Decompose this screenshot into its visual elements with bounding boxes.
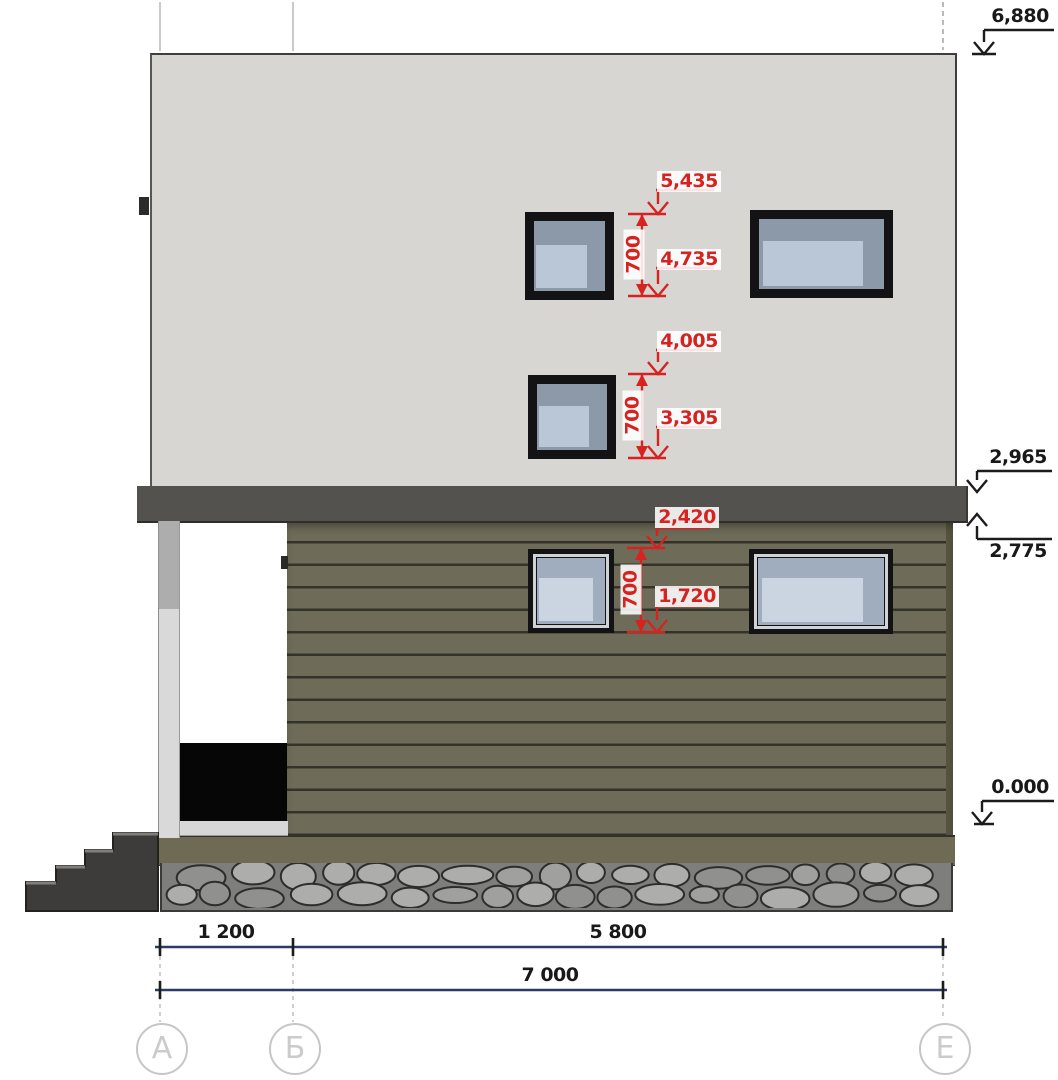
level-label-slab-bottom: 2,775 [984,541,1052,562]
base-band [158,835,955,866]
elevation-drawing: 5,435 700 4,735 4,005 700 3,305 2,420 70… [0,0,1058,1080]
window-ground-left [528,549,614,633]
door-opening [176,743,287,821]
dim-label: 1,720 [655,586,719,607]
window-upper-right [750,210,893,298]
dim-label: 4,735 [657,249,721,270]
foundation-stones [162,863,951,908]
stone-foundation [160,863,953,912]
dim-label-b-e: 5 800 [578,922,658,943]
dim-label-a-b: 1 200 [186,922,266,943]
level-label-roof: 6,880 [986,6,1054,27]
dim-label-total: 7 000 [510,965,590,986]
axis-bubble-b: Б [269,1023,321,1075]
dim-label: 2,420 [655,507,719,528]
dim-label-vertical: 700 [621,565,642,615]
stairs [26,833,158,911]
dim-label: 3,305 [657,408,721,429]
window-upper-left [525,212,614,300]
window-ground-right [749,549,893,634]
dim-label: 4,005 [657,331,721,352]
level-marks [967,30,1054,824]
axis-bubble-e: Е [919,1023,971,1075]
door-sill [170,821,288,836]
window-mid-left [528,375,616,459]
porch-column [158,521,180,838]
siding-bracket [281,556,288,569]
floor-slab-band [137,486,968,523]
axis-bubble-a: А [136,1023,188,1075]
dim-label-vertical: 700 [623,391,644,441]
dim-label: 5,435 [657,171,721,192]
level-label-ground: 0.000 [986,777,1054,798]
level-label-slab-top: 2,965 [984,447,1052,468]
gutter-bracket [139,197,149,215]
dim-label-vertical: 700 [624,230,645,280]
